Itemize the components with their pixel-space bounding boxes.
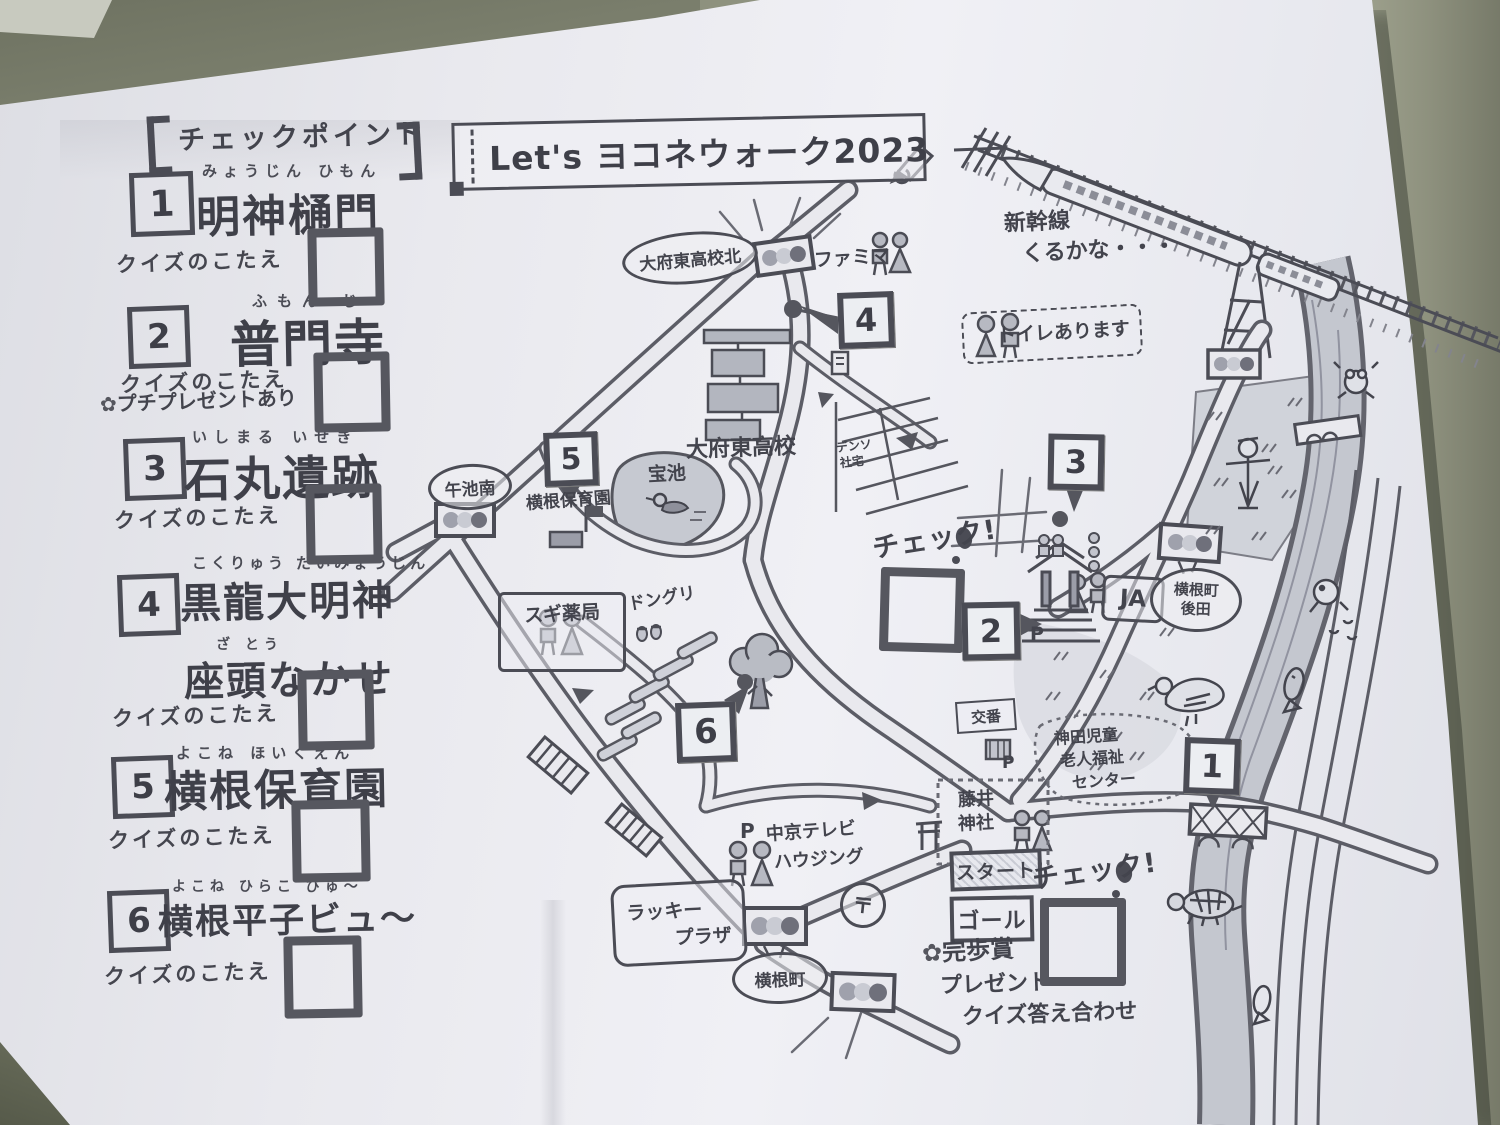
- denso-label-line2: 社宅: [839, 455, 864, 471]
- event-title: Let's ヨコネウォーク2023: [489, 123, 930, 180]
- map-marker-2: 2: [961, 601, 1020, 660]
- toilet-icon-chukyo: [730, 842, 772, 886]
- shinkansen-note-line1: 新幹線: [1003, 208, 1070, 237]
- traffic-light-icon-northeast: [1208, 350, 1260, 378]
- lucky-plaza-box: ラッキー プラザ: [610, 879, 748, 968]
- takara-ike-label: 宝池: [647, 463, 686, 487]
- map-marker-5: 5: [543, 431, 599, 487]
- checkpoint-3-answer-box: [305, 483, 382, 564]
- map-answer-box-1: [879, 567, 965, 653]
- sugi-pharmacy-box: スギ薬局: [498, 592, 626, 672]
- photo-of-handdrawn-map: Let's ヨコネウォーク2023 チェックポイント 1 みょうじん ひもん 明…: [0, 0, 1500, 1125]
- present-label: プレゼント: [940, 970, 1051, 999]
- map-marker-1: 1: [1183, 737, 1241, 795]
- start-banner: スタート: [949, 848, 1042, 891]
- checkpoint-3-quiz-label: クイズのこたえ: [114, 499, 282, 535]
- checkpoint-4-quiz-label: クイズのこたえ: [112, 697, 280, 733]
- kanpo-sho-label: ✿完歩賞: [921, 936, 1014, 968]
- checkpoint-4-name: 黒龍大明神: [179, 566, 395, 630]
- parking-label-koban: P: [1002, 754, 1014, 774]
- map-marker-3: 3: [1048, 434, 1105, 491]
- traffic-light-icon-southeast: [831, 973, 894, 1011]
- checkpoint-4-answer-box: [297, 669, 374, 750]
- fujii-shrine-line1: 藤井: [957, 789, 994, 812]
- checkpoint-5-answer-box: [291, 799, 370, 882]
- checkpoint-6-quiz-label: クイズのこたえ: [104, 955, 272, 991]
- checkpoint-2-answer-box: [313, 351, 390, 432]
- flower-cluster-icon: ✿: [921, 938, 943, 967]
- checkpoint-1-answer-box: [307, 227, 384, 306]
- map-answer-box-2: [1040, 898, 1126, 986]
- bracket-left-icon: [146, 115, 172, 174]
- checkpoint-4-number: 4: [117, 573, 181, 637]
- koban-label: 交番: [955, 698, 1017, 734]
- obu-higashi-school-label: 大府東高校: [686, 434, 797, 463]
- parking-label-temple: P: [1030, 624, 1044, 646]
- checkpoint-6-answer-box: [283, 935, 362, 1018]
- checkpoint-1-quiz-label: クイズのこたえ: [116, 243, 284, 279]
- checkpoint-5-quiz-label: クイズのこたえ: [108, 819, 276, 855]
- flower-icon: ✿: [100, 392, 118, 417]
- bracket-right-icon: [396, 121, 422, 180]
- checkpoint-2-number: 2: [127, 305, 191, 369]
- traffic-light-icon-famima: [754, 236, 814, 275]
- map-marker-4: 4: [837, 291, 895, 349]
- parking-label-chukyo: P: [740, 820, 755, 843]
- title-banner: Let's ヨコネウォーク2023: [451, 113, 926, 191]
- acorn-icon: [637, 625, 661, 641]
- checkpoint-header: チェックポイント: [178, 119, 427, 157]
- map-marker-6: 6: [675, 701, 737, 763]
- checkpoint-3-number: 3: [123, 437, 187, 501]
- bridge-icon-1: [528, 737, 588, 793]
- checkpoint-1-number: 1: [129, 171, 195, 237]
- toilet-note-bubble: トイレあります: [961, 303, 1143, 364]
- fujii-shrine-line2: 神社: [957, 813, 994, 836]
